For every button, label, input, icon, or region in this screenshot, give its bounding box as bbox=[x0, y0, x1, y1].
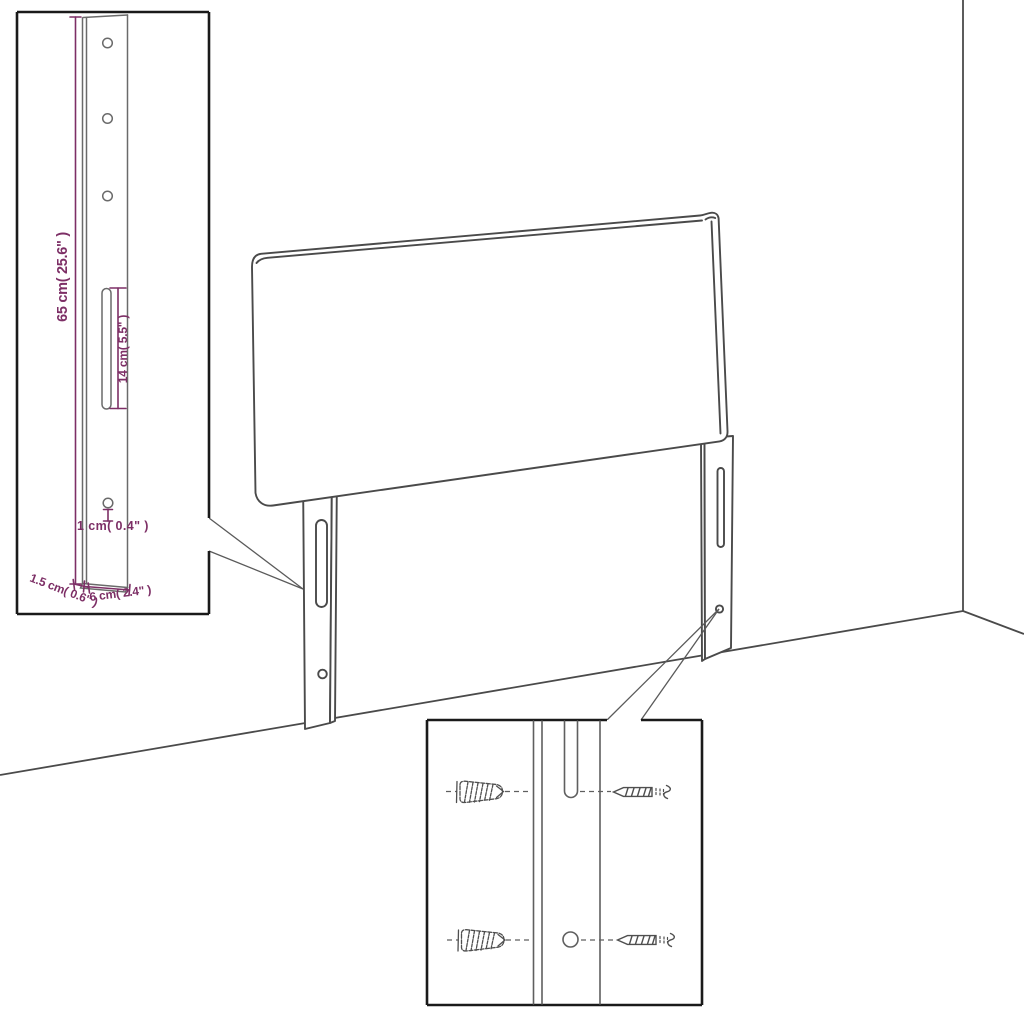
left-leg-hole bbox=[318, 670, 327, 679]
bracket-callout-line-upper bbox=[209, 518, 303, 589]
headboard bbox=[252, 213, 733, 729]
bracket-detail-callout bbox=[209, 518, 303, 589]
bracket-callout-line-lower bbox=[209, 551, 303, 589]
label-slot-length: 14 cm( 5.5" ) bbox=[116, 315, 130, 384]
label-hole-diameter: 1 cm( 0.4" ) bbox=[77, 519, 149, 533]
hardware-detail-box bbox=[427, 720, 702, 1005]
headboard-left-leg bbox=[303, 467, 337, 729]
label-bracket-height: 65 cm( 25.6" ) bbox=[55, 232, 71, 322]
right-leg-slot bbox=[718, 468, 725, 547]
floor-line-right bbox=[963, 611, 1024, 634]
wall-plug-flange bbox=[457, 782, 458, 803]
headboard-panel bbox=[252, 213, 728, 506]
bracket-detail-box: 65 cm( 25.6" ) 14 cm( 5.5" ) 1 cm( 0.4" … bbox=[17, 12, 209, 614]
hardware-callout-line-left bbox=[607, 609, 719, 720]
left-leg-side-face bbox=[330, 467, 337, 723]
diagram-canvas: 65 cm( 25.6" ) 14 cm( 5.5" ) 1 cm( 0.4" … bbox=[0, 0, 1024, 1024]
hardware-detail-callout bbox=[607, 609, 719, 720]
left-leg-slot bbox=[316, 520, 327, 607]
headboard-assembly-diagram: 65 cm( 25.6" ) 14 cm( 5.5" ) 1 cm( 0.4" … bbox=[0, 0, 1024, 1024]
